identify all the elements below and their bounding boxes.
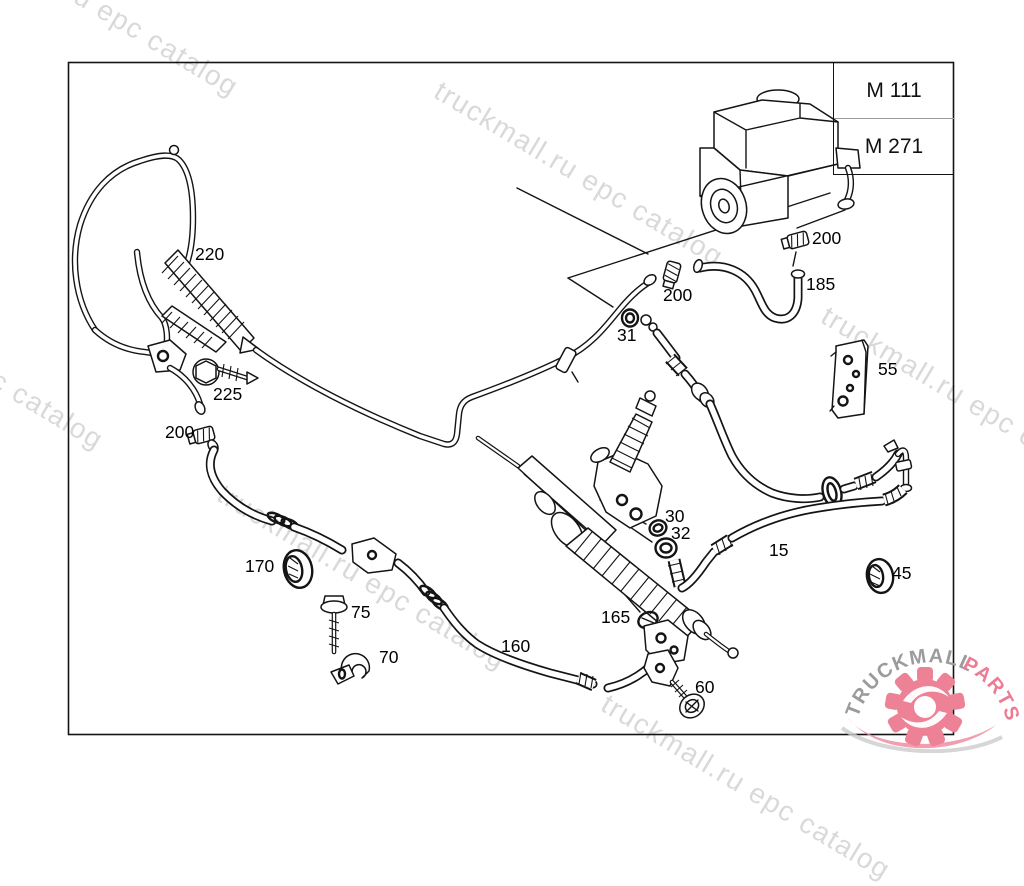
mounting-bracket bbox=[644, 620, 688, 686]
grommet-170 bbox=[280, 548, 315, 591]
part-callout-55[interactable]: 55 bbox=[878, 361, 897, 379]
loop-clamp-70 bbox=[331, 654, 369, 684]
bolt-225 bbox=[193, 359, 258, 385]
part-callout-165[interactable]: 165 bbox=[601, 609, 630, 627]
logo-brand-secondary: PARTS bbox=[959, 653, 1023, 724]
part-callout-70[interactable]: 70 bbox=[379, 649, 398, 667]
part-callout-220[interactable]: 220 bbox=[195, 246, 224, 264]
leader-lines bbox=[517, 188, 845, 612]
pressure-hose-31 bbox=[622, 310, 912, 509]
engine-module-table: M 111 M 271 bbox=[833, 63, 954, 175]
part-callout-185[interactable]: 185 bbox=[806, 276, 835, 294]
screw-75 bbox=[321, 596, 347, 652]
part-callout-45[interactable]: 45 bbox=[892, 565, 911, 583]
part-callout-75[interactable]: 75 bbox=[351, 604, 370, 622]
supply-pipe bbox=[256, 273, 658, 445]
part-callout-200-left[interactable]: 200 bbox=[165, 424, 194, 442]
part-callout-200-mid[interactable]: 200 bbox=[663, 287, 692, 305]
module-row-m271[interactable]: M 271 bbox=[834, 119, 954, 174]
part-callout-15[interactable]: 15 bbox=[769, 542, 788, 560]
gear-icon bbox=[884, 667, 966, 747]
part-callout-32[interactable]: 32 bbox=[671, 525, 690, 543]
bracket-55 bbox=[830, 340, 868, 418]
fitting-nub bbox=[170, 146, 179, 155]
part-callout-160[interactable]: 160 bbox=[501, 638, 530, 656]
part-callout-225[interactable]: 225 bbox=[213, 386, 242, 404]
part-callout-31[interactable]: 31 bbox=[617, 327, 636, 345]
part-callout-60[interactable]: 60 bbox=[695, 679, 714, 697]
hose-clamp-icon bbox=[781, 231, 810, 251]
part-callout-170[interactable]: 170 bbox=[245, 558, 274, 576]
part-callout-200-top[interactable]: 200 bbox=[812, 230, 841, 248]
truckmall-parts-logo: TRUCKMALL PARTS bbox=[830, 633, 1024, 753]
hose-bracket bbox=[352, 538, 396, 573]
suction-hose-185 bbox=[692, 259, 804, 319]
module-row-m111[interactable]: M 111 bbox=[834, 63, 954, 119]
epc-diagram-page: { "watermark": { "text": "truckmall.ru e… bbox=[0, 0, 1024, 750]
